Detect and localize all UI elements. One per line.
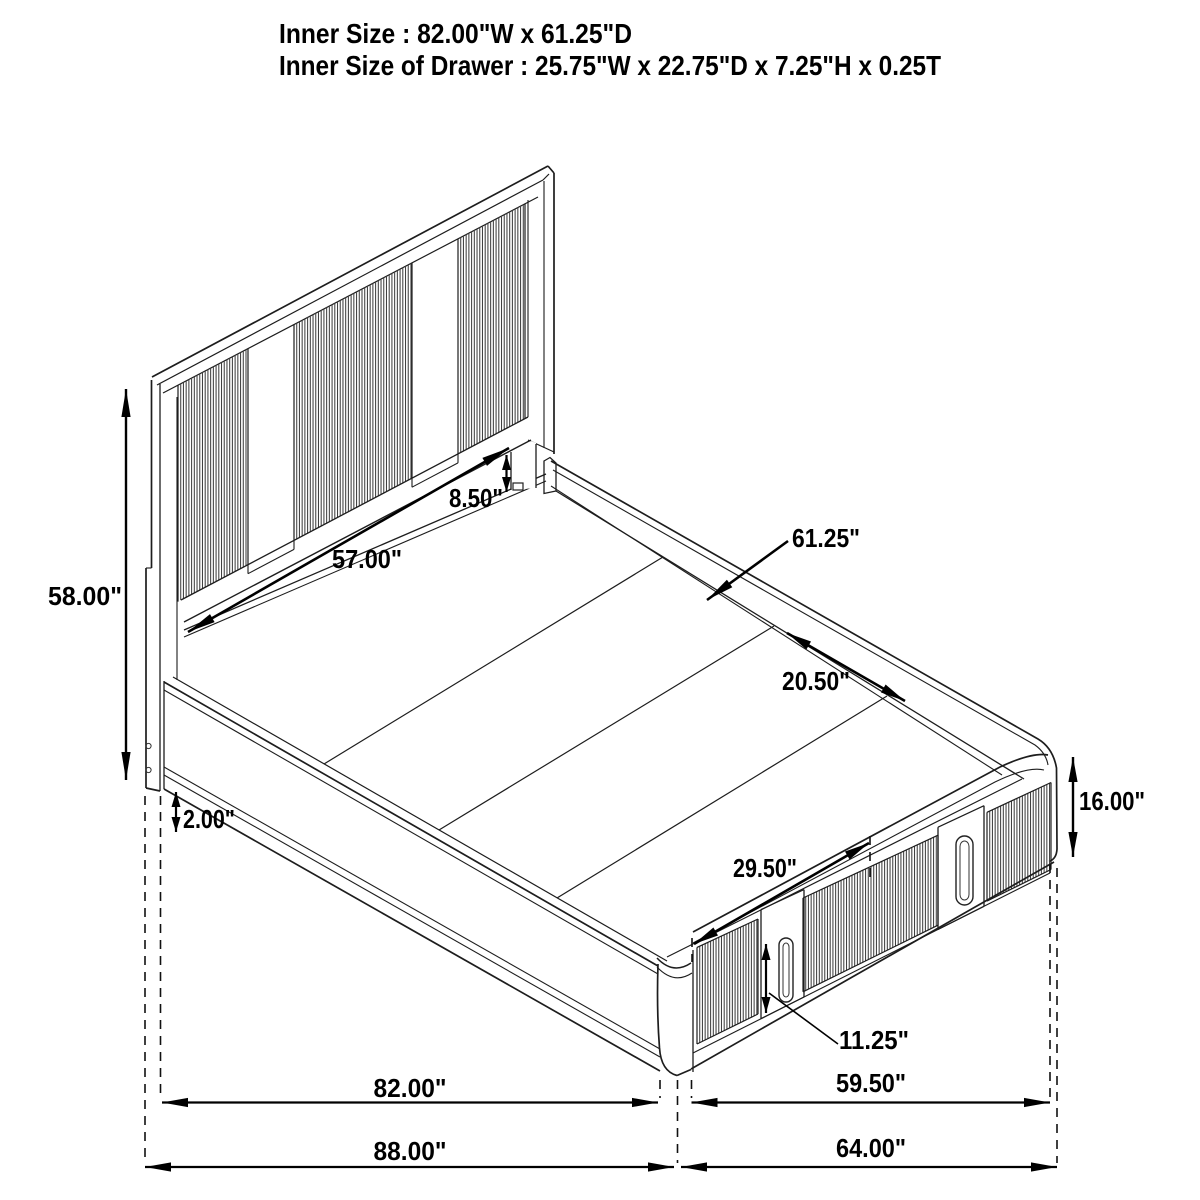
svg-text:57.00": 57.00"	[332, 544, 402, 574]
svg-text:61.25": 61.25"	[792, 523, 860, 553]
svg-text:58.00": 58.00"	[48, 581, 122, 611]
svg-text:11.25": 11.25"	[839, 1025, 909, 1055]
svg-text:88.00": 88.00"	[374, 1136, 447, 1166]
svg-text:Inner Size of Drawer : 25.75"W: Inner Size of Drawer : 25.75"W x 22.75"D…	[279, 50, 941, 81]
svg-text:82.00": 82.00"	[374, 1073, 447, 1103]
svg-text:2.00": 2.00"	[183, 804, 235, 834]
svg-text:Inner Size : 82.00"W x 61.25"D: Inner Size : 82.00"W x 61.25"D	[279, 18, 632, 49]
svg-text:8.50": 8.50"	[449, 483, 503, 513]
svg-text:20.50": 20.50"	[782, 666, 850, 696]
svg-text:29.50": 29.50"	[733, 853, 797, 883]
svg-text:64.00": 64.00"	[836, 1133, 906, 1163]
svg-text:16.00": 16.00"	[1079, 786, 1145, 816]
svg-text:59.50": 59.50"	[836, 1068, 906, 1098]
